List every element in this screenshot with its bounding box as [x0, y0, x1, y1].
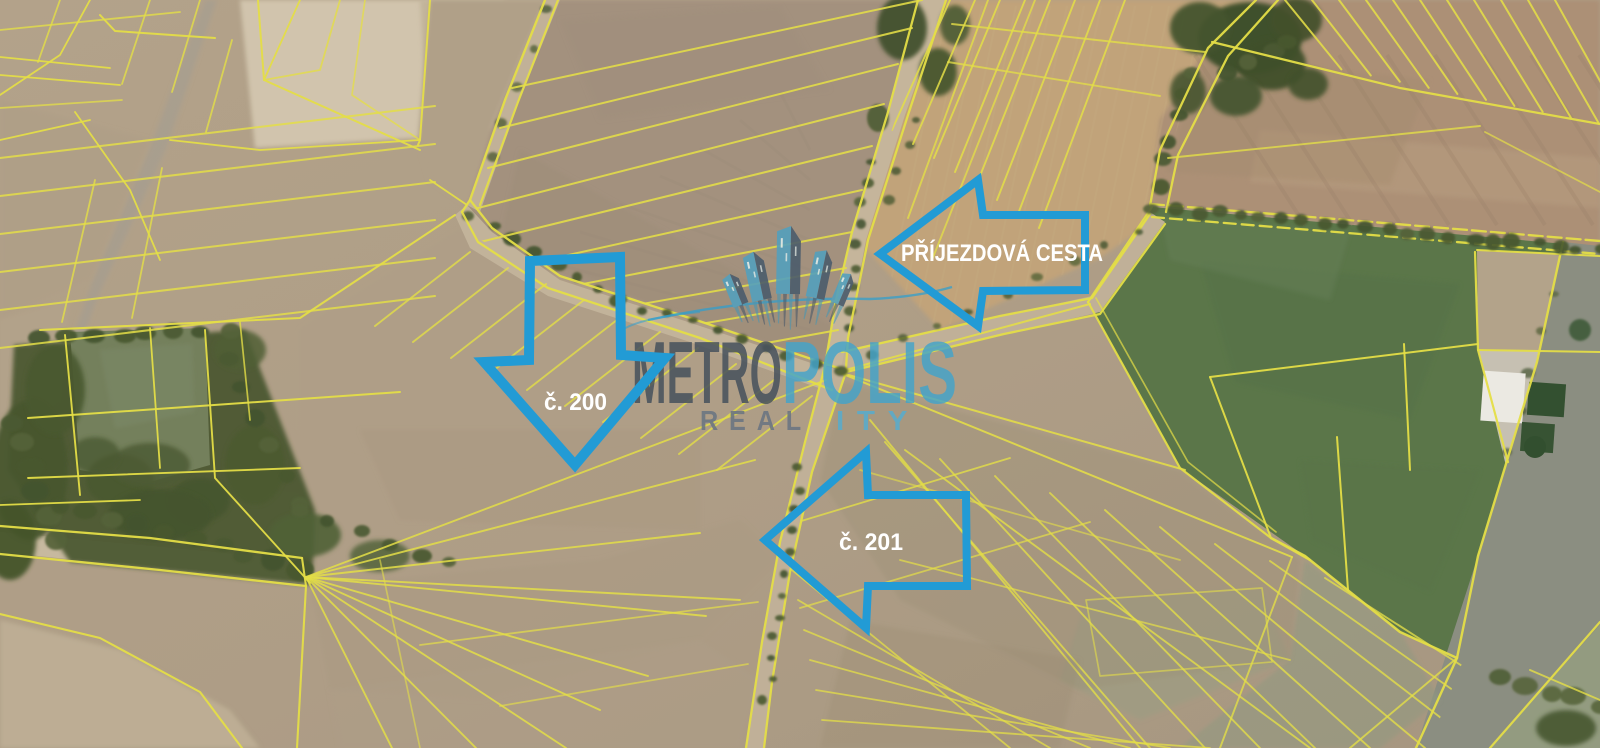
svg-text:REAL: REAL	[700, 405, 812, 436]
svg-text:ITY: ITY	[836, 405, 920, 436]
svg-text:č. 201: č. 201	[839, 529, 903, 556]
svg-text:PŘÍJEZDOVÁ CESTA: PŘÍJEZDOVÁ CESTA	[901, 239, 1103, 267]
svg-text:č. 200: č. 200	[544, 389, 607, 416]
